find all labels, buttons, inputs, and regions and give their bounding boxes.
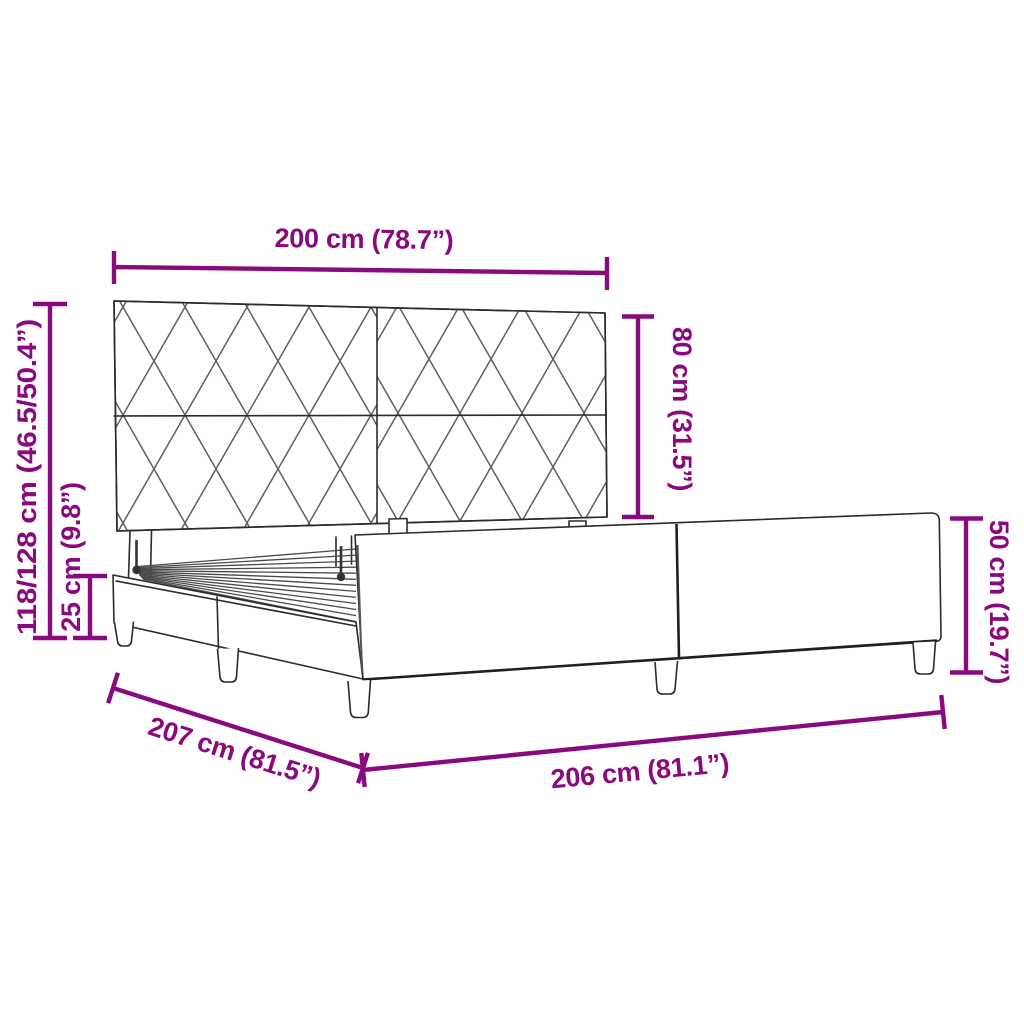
bed-leg (655, 661, 678, 694)
bed-leg (913, 642, 936, 675)
headboard (114, 301, 607, 531)
dimension-line-side-rail-height (950, 519, 983, 674)
bed-leg (115, 622, 134, 647)
front-panel (355, 513, 941, 680)
dimension-frame-depth: 207 cm (81.5”) (108, 673, 368, 794)
dimension-label-side-rail-height: 50 cm (19.7”) (984, 520, 1014, 684)
dimension-headboard-height: 80 cm (31.5”) (622, 317, 697, 518)
dimension-line-headboard-width (114, 251, 607, 290)
product-dimension-diagram: 200 cm (78.7”) 80 cm (31.5”) 118/128 cm … (0, 0, 1024, 1024)
bed-leg (348, 680, 371, 718)
dimension-label-headboard-width: 200 cm (78.7”) (274, 223, 453, 255)
dimension-label-headboard-height: 80 cm (31.5”) (667, 327, 697, 491)
dimension-headboard-width: 200 cm (78.7”) (114, 223, 607, 290)
bed-frame-drawing (113, 301, 941, 718)
dimension-label-total-height: 118/128 cm (46.5/50.4”) (12, 319, 42, 635)
dimension-label-frame-length: 206 cm (81.1”) (549, 748, 730, 794)
front-panel-face (355, 513, 941, 680)
mounting-bolt-head (132, 566, 140, 574)
dimension-side-rail-height: 50 cm (19.7”) (950, 519, 1014, 685)
dimension-label-frame-depth: 207 cm (81.5”) (145, 711, 325, 793)
mounting-bolt-head (337, 573, 345, 581)
dimension-label-base-height: 25 cm (9.8”) (56, 482, 86, 631)
dimension-frame-length: 206 cm (81.1”) (361, 695, 944, 794)
bed-leg (218, 648, 239, 682)
headboard-seam-horizontal (114, 415, 606, 416)
dimension-line-headboard-height (622, 317, 654, 518)
dimension-base-height: 25 cm (9.8”) (56, 482, 107, 638)
